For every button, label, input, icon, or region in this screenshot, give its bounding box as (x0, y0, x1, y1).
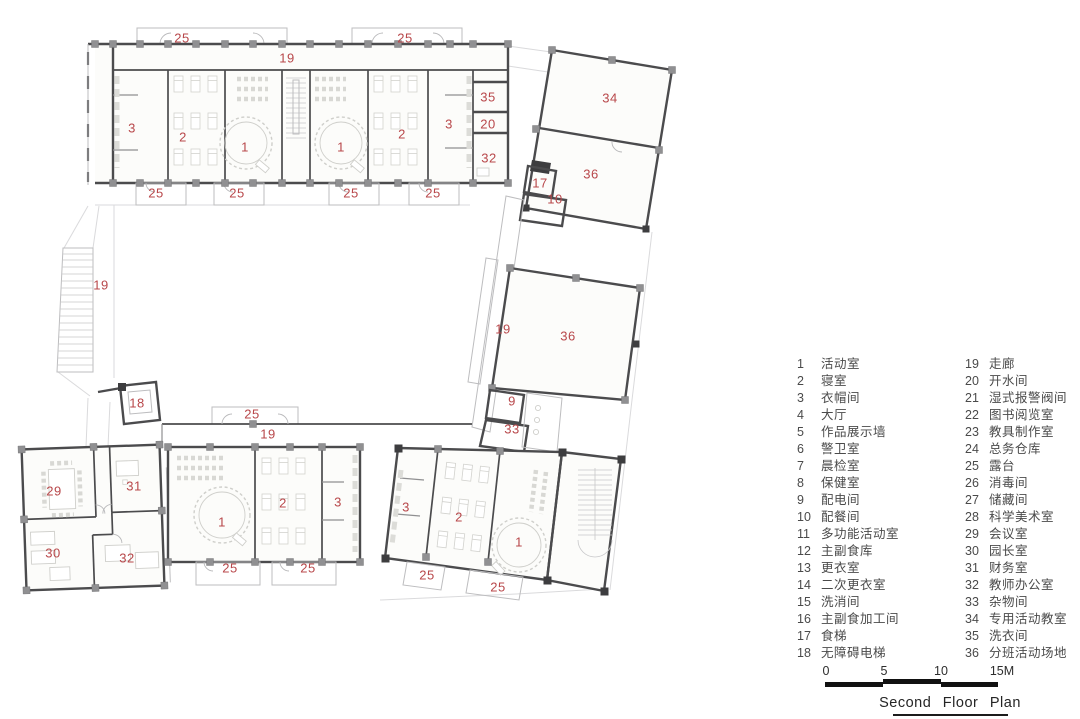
legend-item: 7 晨检室 (797, 458, 899, 475)
external-stair-west (57, 248, 93, 372)
legend-item-label: 教师办公室 (989, 577, 1054, 594)
legend-item-label: 主副食库 (821, 543, 873, 560)
southeast-classroom-block (382, 445, 626, 601)
legend-item-label: 更衣室 (821, 560, 860, 577)
legend-item-label: 警卫室 (821, 441, 860, 458)
south-corridor (162, 407, 472, 447)
legend-item: 23 教具制作室 (965, 424, 1067, 441)
legend-item: 29 会议室 (965, 526, 1067, 543)
legend-item-number: 14 (797, 577, 821, 594)
legend-item-number: 7 (797, 458, 821, 475)
legend-item: 36 分班活动场地 (965, 645, 1067, 662)
plan-title: Second Floor Plan (879, 695, 1021, 711)
legend-item-label: 活动室 (821, 356, 860, 373)
legend-item-label: 衣帽间 (821, 390, 860, 407)
admin-block (18, 441, 171, 594)
legend-item-label: 科学美术室 (989, 509, 1054, 526)
legend-item: 31 财务室 (965, 560, 1067, 577)
title-underline (893, 714, 1008, 716)
south-classroom-block (165, 444, 364, 586)
legend-item-label: 消毒间 (989, 475, 1028, 492)
legend-item-label: 无障碍电梯 (821, 645, 886, 662)
legend-item-label: 寝室 (821, 373, 847, 390)
legend-item-number: 9 (797, 492, 821, 509)
legend-item: 22 图书阅览室 (965, 407, 1067, 424)
legend-item-label: 分班活动场地 (989, 645, 1067, 662)
legend-item-number: 18 (797, 645, 821, 662)
legend-item-number: 28 (965, 509, 989, 526)
legend-item: 25 露台 (965, 458, 1067, 475)
northeast-activity-block (520, 47, 676, 233)
legend-item-label: 园长室 (989, 543, 1028, 560)
legend-item-number: 11 (797, 526, 821, 543)
elevator-block-18 (98, 382, 160, 424)
legend-item-number: 36 (965, 645, 989, 662)
legend-item-number: 35 (965, 628, 989, 645)
legend-item-number: 13 (797, 560, 821, 577)
east-corridor-and-room36 (472, 196, 644, 452)
legend-item: 9 配电间 (797, 492, 899, 509)
legend-item-label: 配餐间 (821, 509, 860, 526)
legend-item-label: 开水间 (989, 373, 1028, 390)
legend-item-number: 22 (965, 407, 989, 424)
scale-segment-3 (941, 682, 998, 687)
legend-item-label: 露台 (989, 458, 1015, 475)
legend-item: 14 二次更衣室 (797, 577, 899, 594)
legend-item: 34 专用活动教室 (965, 611, 1067, 628)
legend-item-number: 30 (965, 543, 989, 560)
legend-item-label: 教具制作室 (989, 424, 1054, 441)
legend-item: 3 衣帽间 (797, 390, 899, 407)
legend-item: 11 多功能活动室 (797, 526, 899, 543)
legend-item-label: 多功能活动室 (821, 526, 899, 543)
legend-item-label: 会议室 (989, 526, 1028, 543)
legend-item-label: 作品展示墙 (821, 424, 886, 441)
legend-item: 13 更衣室 (797, 560, 899, 577)
legend-item-number: 26 (965, 475, 989, 492)
legend-item-label: 主副食加工间 (821, 611, 899, 628)
legend-item-label: 大厅 (821, 407, 847, 424)
legend-item: 35 洗衣间 (965, 628, 1067, 645)
legend-item-number: 32 (965, 577, 989, 594)
legend-item-label: 食梯 (821, 628, 847, 645)
legend-item: 8 保健室 (797, 475, 899, 492)
legend-item: 20 开水间 (965, 373, 1067, 390)
legend-item-number: 17 (797, 628, 821, 645)
legend-item-number: 8 (797, 475, 821, 492)
legend-item-label: 配电间 (821, 492, 860, 509)
legend-item-number: 1 (797, 356, 821, 373)
legend-item: 18 无障碍电梯 (797, 645, 899, 662)
legend-item: 21 湿式报警阀间 (965, 390, 1067, 407)
legend-item-label: 走廊 (989, 356, 1015, 373)
legend: 1 活动室 2 寝室 3 衣帽间 4 大厅 (797, 356, 1067, 662)
legend-item-number: 23 (965, 424, 989, 441)
legend-item: 10 配餐间 (797, 509, 899, 526)
legend-item: 16 主副食加工间 (797, 611, 899, 628)
legend-item: 30 园长室 (965, 543, 1067, 560)
legend-item-number: 27 (965, 492, 989, 509)
legend-item-label: 杂物间 (989, 594, 1028, 611)
legend-item: 4 大厅 (797, 407, 899, 424)
legend-item-label: 保健室 (821, 475, 860, 492)
north-classroom-wing (88, 28, 512, 205)
legend-item-number: 31 (965, 560, 989, 577)
legend-item-label: 储藏间 (989, 492, 1028, 509)
legend-item-number: 10 (797, 509, 821, 526)
legend-item-number: 16 (797, 611, 821, 628)
legend-item-number: 3 (797, 390, 821, 407)
legend-item-label: 晨检室 (821, 458, 860, 475)
legend-item: 28 科学美术室 (965, 509, 1067, 526)
legend-item-number: 33 (965, 594, 989, 611)
legend-item-label: 洗消间 (821, 594, 860, 611)
legend-item-number: 19 (965, 356, 989, 373)
legend-item: 5 作品展示墙 (797, 424, 899, 441)
legend-item-number: 20 (965, 373, 989, 390)
legend-item-label: 专用活动教室 (989, 611, 1067, 628)
legend-item-label: 图书阅览室 (989, 407, 1054, 424)
legend-item-number: 29 (965, 526, 989, 543)
legend-item-label: 湿式报警阀间 (989, 390, 1067, 407)
legend-item-number: 2 (797, 373, 821, 390)
legend-item-number: 34 (965, 611, 989, 628)
legend-item-number: 21 (965, 390, 989, 407)
legend-item-number: 24 (965, 441, 989, 458)
legend-item: 1 活动室 (797, 356, 899, 373)
scale-segment-1 (825, 682, 883, 687)
floor-plan-page: 25 25 19 3 2 1 1 2 3 35 20 32 25 25 25 (0, 0, 1080, 719)
legend-item-number: 5 (797, 424, 821, 441)
legend-item: 12 主副食库 (797, 543, 899, 560)
legend-item: 32 教师办公室 (965, 577, 1067, 594)
scale-segment-2 (883, 679, 941, 684)
legend-item-number: 25 (965, 458, 989, 475)
legend-item-label: 财务室 (989, 560, 1028, 577)
legend-item-number: 6 (797, 441, 821, 458)
legend-item: 33 杂物间 (965, 594, 1067, 611)
legend-item: 24 总务仓库 (965, 441, 1067, 458)
legend-item: 15 洗消间 (797, 594, 899, 611)
legend-item: 19 走廊 (965, 356, 1067, 373)
legend-item-number: 4 (797, 407, 821, 424)
legend-item: 27 储藏间 (965, 492, 1067, 509)
legend-item-label: 总务仓库 (989, 441, 1041, 458)
legend-column-2: 19 走廊 20 开水间 21 湿式报警阀间 22 图书阅览室 (965, 356, 1067, 662)
legend-item: 2 寝室 (797, 373, 899, 390)
legend-item: 17 食梯 (797, 628, 899, 645)
legend-item-number: 12 (797, 543, 821, 560)
legend-item-label: 二次更衣室 (821, 577, 886, 594)
legend-item: 6 警卫室 (797, 441, 899, 458)
legend-column-1: 1 活动室 2 寝室 3 衣帽间 4 大厅 (797, 356, 899, 662)
legend-item: 26 消毒间 (965, 475, 1067, 492)
legend-item-label: 洗衣间 (989, 628, 1028, 645)
legend-item-number: 15 (797, 594, 821, 611)
